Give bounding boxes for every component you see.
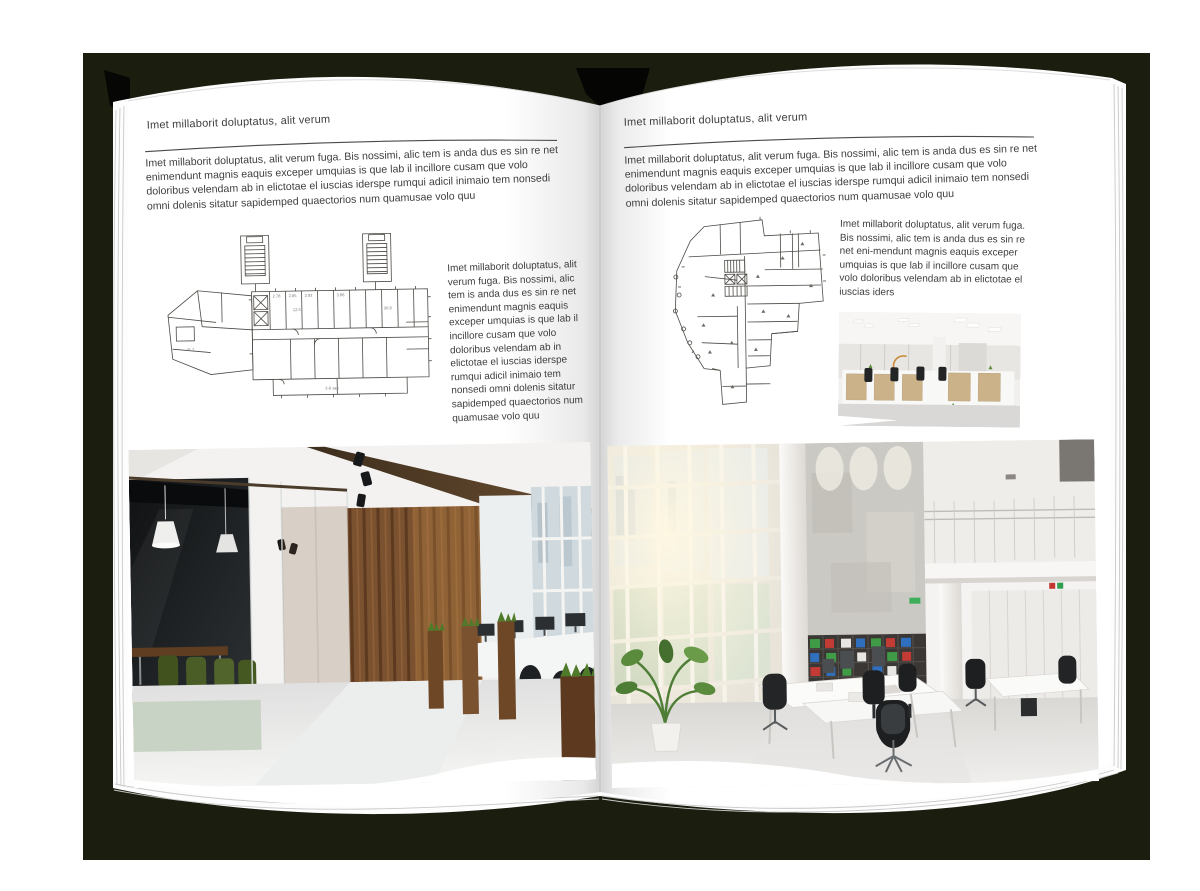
floor [838, 403, 1020, 427]
svg-text:12.5: 12.5 [293, 307, 302, 312]
right-column: Imet millaborit doluptatus, alit verum f… [838, 218, 1040, 428]
left-photo [128, 442, 596, 788]
svg-text:41.7: 41.7 [187, 347, 196, 352]
magazine-spread-mockup: Imet millaborit doluptatus, alit verum I… [0, 0, 1200, 891]
right-caption-paragraph: Imet millaborit doluptatus, alit verum f… [839, 218, 1038, 302]
svg-text:2-й зал: 2-й зал [325, 385, 339, 390]
left-floorplan: 2.78 2.85 2.92 3.86 12.5 30.8 41.7 2-й з… [154, 226, 449, 413]
glass-facade [607, 444, 783, 738]
svg-text:3.86: 3.86 [337, 292, 346, 297]
svg-text:30.8: 30.8 [384, 305, 393, 310]
right-page: Imet millaborit doluptatus, alit verum I… [602, 48, 1100, 805]
concrete-wall [805, 442, 926, 636]
right-page-title: Imet millaborit doluptatus, alit verum [624, 111, 808, 128]
meeting-table [132, 646, 228, 657]
right-small-photo [838, 311, 1021, 427]
mezzanine [923, 439, 1096, 583]
right-floorplan [640, 215, 843, 418]
left-page-title: Imet millaborit doluptatus, alit verum [147, 114, 331, 132]
svg-text:2.85: 2.85 [289, 293, 298, 298]
left-caption-paragraph: Imet millaborit doluptatus, alit verum f… [447, 258, 588, 426]
right-photo [607, 439, 1099, 788]
left-page: Imet millaborit doluptatus, alit verum I… [121, 52, 606, 805]
svg-text:2.92: 2.92 [305, 293, 314, 298]
right-intro-paragraph: Imet millaborit doluptatus, alit verum f… [624, 141, 1049, 210]
svg-text:2.78: 2.78 [273, 293, 282, 298]
